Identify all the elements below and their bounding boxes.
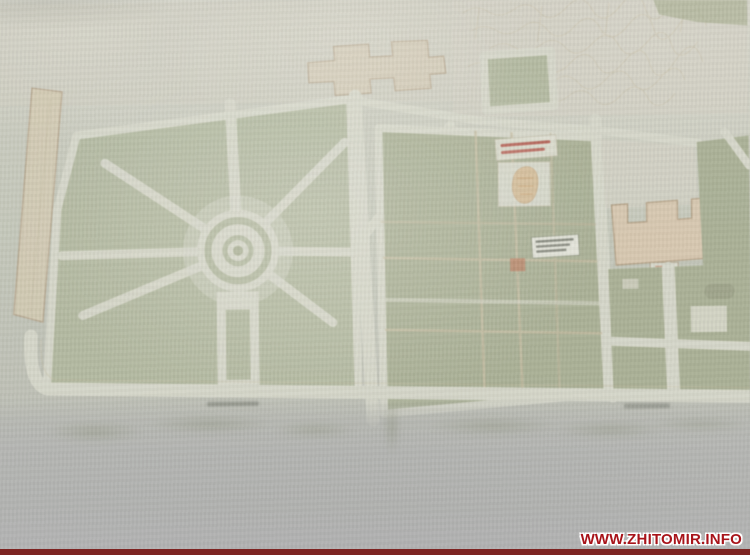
red-crossing-marker — [510, 258, 525, 271]
boulevard — [217, 291, 260, 394]
north-green-block — [484, 51, 555, 111]
central-grid-lawn — [379, 125, 608, 414]
right-plaza — [601, 138, 699, 208]
photo-of-projected-site-plan: WWW.ZHITOMIR.INFO — [0, 0, 750, 555]
watermark-red-bar — [0, 549, 750, 555]
pond-shape — [704, 284, 734, 299]
right-notched-building — [611, 198, 711, 265]
floor-smudge-texture — [0, 406, 750, 476]
red-annotation-label — [495, 135, 558, 161]
emblem-box — [498, 162, 551, 207]
watermark: WWW.ZHITOMIR.INFO — [581, 531, 742, 548]
info-label — [531, 234, 579, 258]
watermark-text: WWW.ZHITOMIR.INFO — [581, 531, 742, 548]
